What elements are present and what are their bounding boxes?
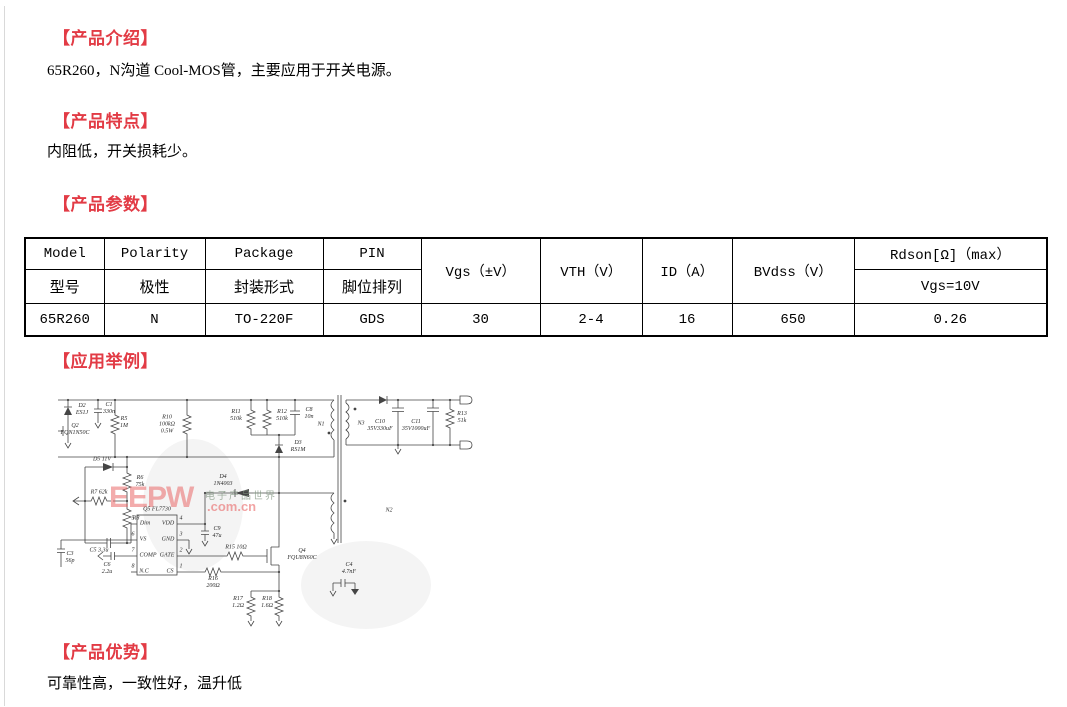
intro-text: 65R260，N沟道 Cool-MOS管，主要应用于开关电源。 (47, 59, 401, 80)
watermark-eepw-logo: EEPW (109, 483, 193, 513)
header-vgs: Vgs（±V） (421, 238, 540, 304)
header-package: Package (205, 238, 323, 270)
value-vgs: 30 (421, 304, 540, 337)
header-polarity-cn: 极性 (104, 270, 205, 304)
page-left-border (4, 6, 5, 706)
value-vth: 2-4 (540, 304, 642, 337)
features-text: 内阻低，开关损耗少。 (47, 140, 197, 161)
datasheet-page: 【产品介绍】 65R260，N沟道 Cool-MOS管，主要应用于开关电源。 【… (0, 0, 1067, 707)
watermark-domain-text: .com.cn (207, 499, 256, 514)
value-package: TO-220F (205, 304, 323, 337)
table-header-row-en: Model Polarity Package PIN Vgs（±V） VTH（V… (25, 238, 1047, 270)
value-id: 16 (642, 304, 732, 337)
header-model: Model (25, 238, 104, 270)
header-id: ID（A） (642, 238, 732, 304)
application-schematic: 电子产品世界 EEPW .com.cn D2 ES1JC1 330nQ2 FQN… (55, 383, 513, 628)
header-bvdss: BVdss（V） (732, 238, 854, 304)
section-heading-intro: 【产品介绍】 (53, 24, 158, 49)
value-rdson: 0.26 (854, 304, 1047, 337)
header-rdson-condition: Vgs=10V (854, 270, 1047, 304)
value-bvdss: 650 (732, 304, 854, 337)
header-pin: PIN (323, 238, 421, 270)
section-heading-advantages: 【产品优势】 (53, 638, 158, 663)
value-model: 65R260 (25, 304, 104, 337)
table-data-row: 65R260 N TO-220F GDS 30 2-4 16 650 0.26 (25, 304, 1047, 337)
parameters-table: Model Polarity Package PIN Vgs（±V） VTH（V… (24, 237, 1048, 337)
header-rdson: Rdson[Ω]（max） (854, 238, 1047, 270)
header-model-cn: 型号 (25, 270, 104, 304)
section-heading-application: 【应用举例】 (53, 347, 158, 372)
value-pin: GDS (323, 304, 421, 337)
header-pin-cn: 脚位排列 (323, 270, 421, 304)
advantages-text: 可靠性高，一致性好，温升低 (47, 672, 242, 693)
value-polarity: N (104, 304, 205, 337)
section-heading-params: 【产品参数】 (53, 190, 158, 215)
header-polarity: Polarity (104, 238, 205, 270)
section-heading-features: 【产品特点】 (53, 107, 158, 132)
header-package-cn: 封装形式 (205, 270, 323, 304)
header-vth: VTH（V） (540, 238, 642, 304)
